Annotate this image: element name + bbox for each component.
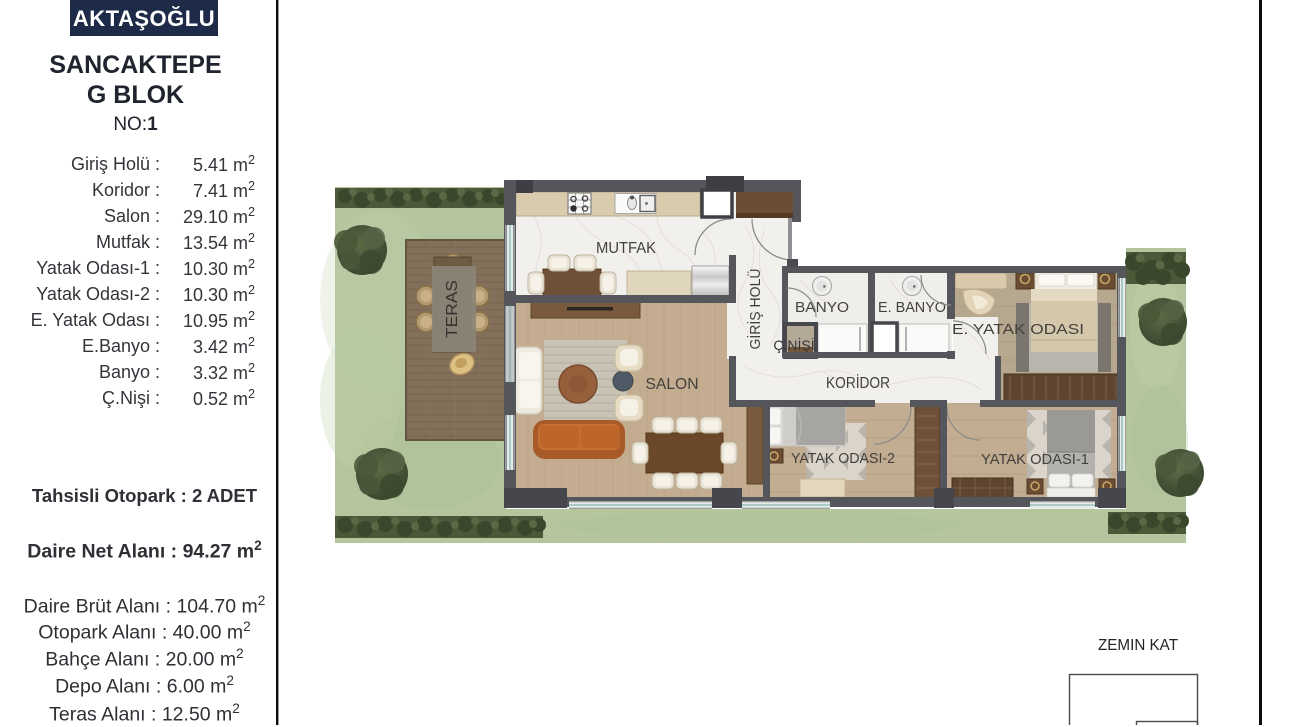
svg-text:TERAS: TERAS — [444, 280, 461, 338]
svg-text:YATAK ODASI-2: YATAK ODASI-2 — [791, 450, 895, 467]
svg-text:KORİDOR: KORİDOR — [826, 373, 890, 392]
svg-text:ZEMIN KAT: ZEMIN KAT — [1098, 637, 1178, 654]
svg-text:MUTFAK: MUTFAK — [596, 240, 656, 257]
svg-text:Ç.NİŞİ: Ç.NİŞİ — [773, 336, 814, 353]
svg-text:YATAK ODASI-1: YATAK ODASI-1 — [981, 451, 1089, 468]
svg-text:E. YATAK ODASI: E. YATAK ODASI — [952, 321, 1084, 338]
svg-text:BANYO: BANYO — [795, 299, 849, 316]
svg-text:GİRİŞ HOLÜ: GİRİŞ HOLÜ — [746, 269, 764, 350]
svg-text:SALON: SALON — [646, 376, 699, 393]
